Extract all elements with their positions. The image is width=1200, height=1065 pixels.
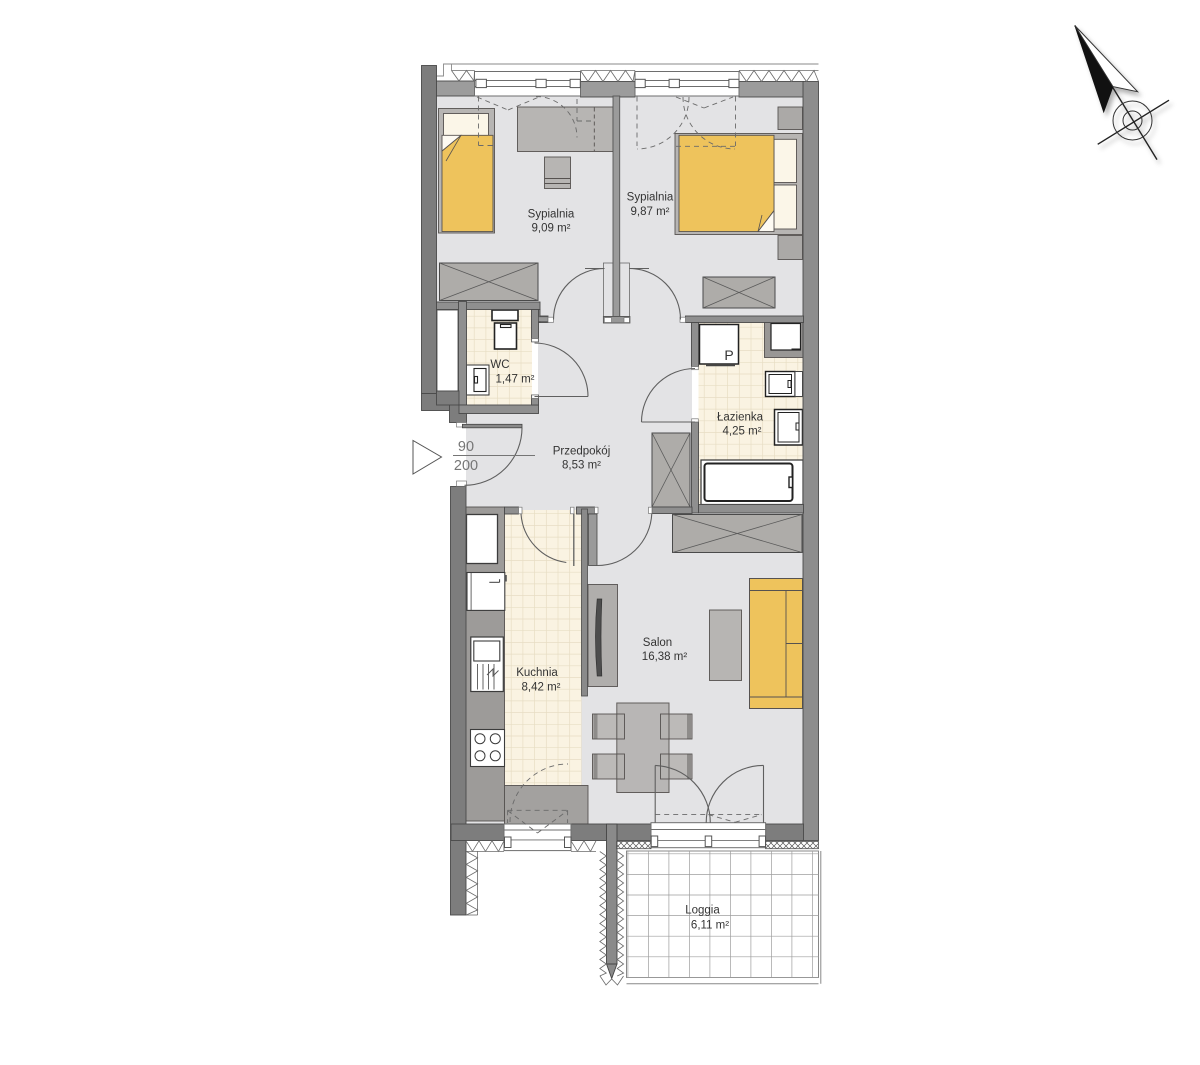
svg-text:8,42 m²: 8,42 m² (522, 682, 561, 694)
svg-text:Loggia: Loggia (685, 905, 720, 917)
svg-text:WC: WC (490, 359, 509, 371)
svg-text:8,53 m²: 8,53 m² (562, 460, 601, 472)
svg-text:Przedpokój: Przedpokój (553, 446, 611, 458)
svg-text:Salon: Salon (643, 637, 672, 649)
svg-text:200: 200 (454, 458, 478, 474)
svg-text:Sypialnia: Sypialnia (627, 192, 674, 204)
svg-text:4,25 m²: 4,25 m² (723, 426, 762, 438)
svg-text:1,47 m²: 1,47 m² (496, 374, 535, 386)
svg-text:9,87 m²: 9,87 m² (631, 206, 670, 218)
svg-text:P: P (724, 347, 733, 363)
svg-text:90: 90 (458, 439, 474, 455)
svg-text:16,38 m²: 16,38 m² (642, 651, 688, 663)
svg-text:Sypialnia: Sypialnia (528, 209, 575, 221)
svg-text:6,11 m²: 6,11 m² (691, 920, 729, 932)
svg-text:Łazienka: Łazienka (717, 412, 764, 424)
svg-text:Kuchnia: Kuchnia (516, 667, 558, 679)
svg-text:9,09 m²: 9,09 m² (532, 223, 571, 235)
